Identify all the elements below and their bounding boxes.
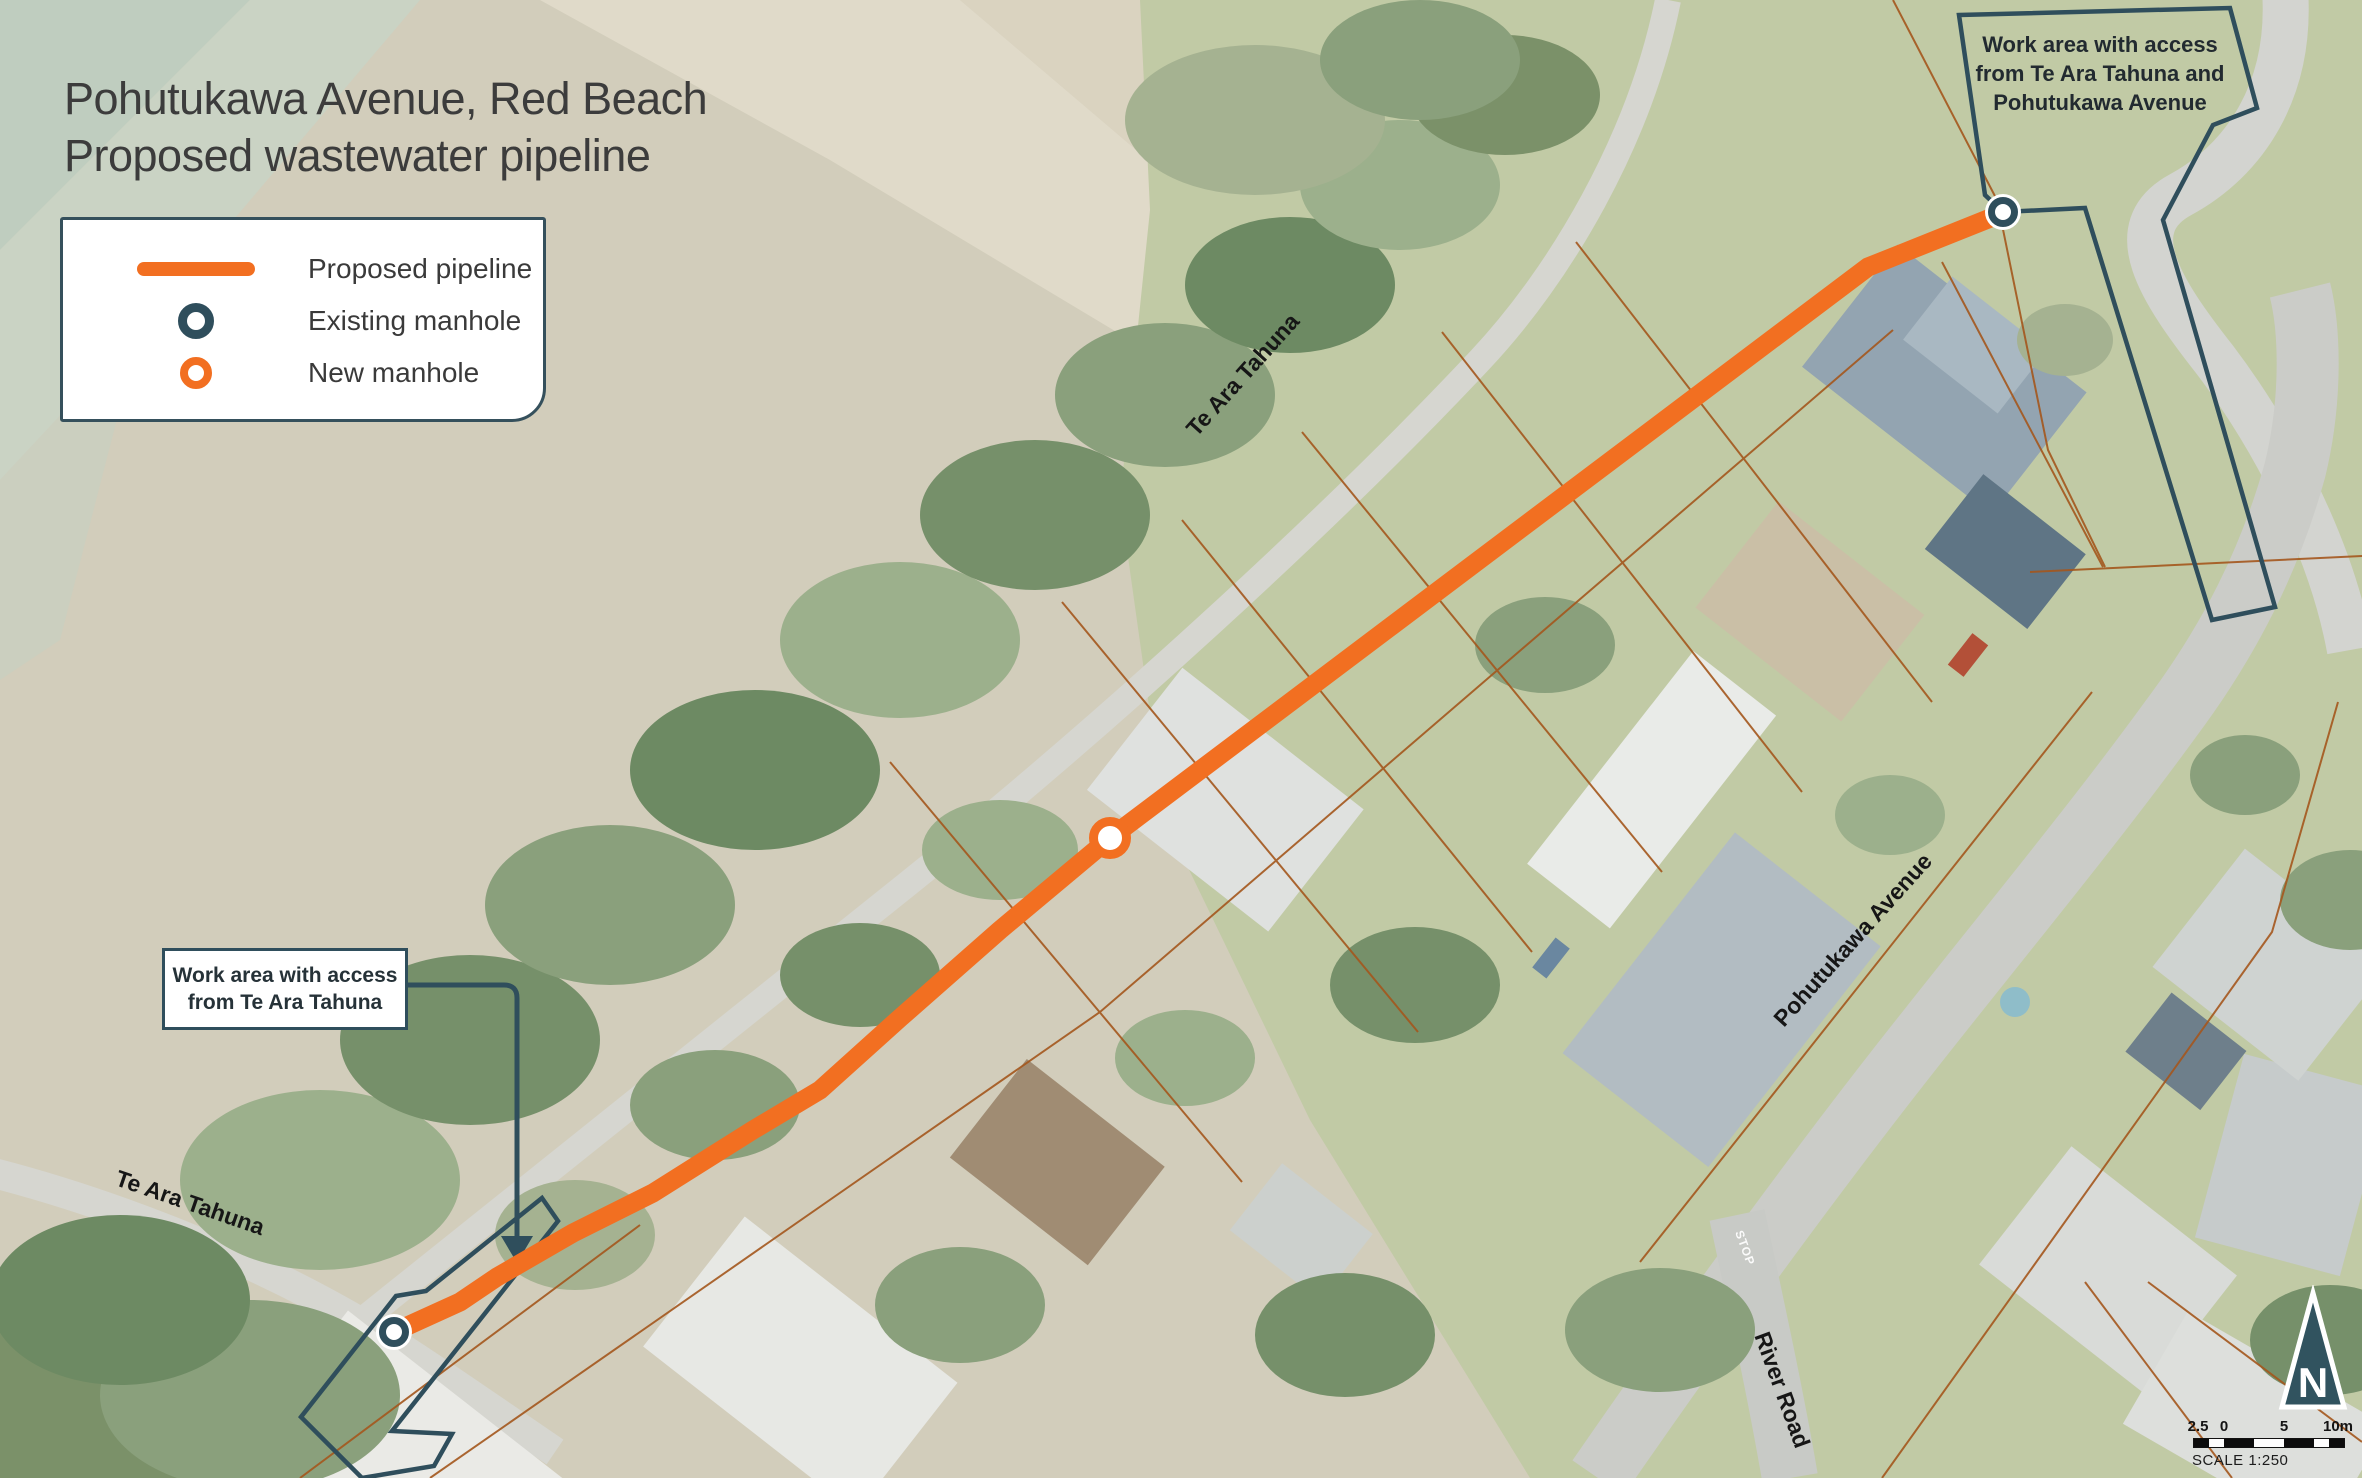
legend-label-existing-manhole: Existing manhole (308, 305, 521, 337)
scale-bar: 2.5 0 5 10m SCALE 1:250 (2186, 1418, 2356, 1478)
legend-item-new-manhole: New manhole (63, 348, 543, 398)
north-arrow-label: N (2298, 1359, 2328, 1406)
scale-caption: SCALE 1:250 (2192, 1452, 2288, 1469)
existing-manhole-marker-bottom-left (376, 1314, 412, 1350)
callout-tr-line1: Work area with access (1975, 30, 2225, 59)
proposed-pipeline (394, 213, 2003, 1332)
scale-tick-10m: 10m (2323, 1418, 2353, 1435)
callout-leader-line (402, 985, 517, 1238)
callout-tr-line2: from Te Ara Tahuna and (1975, 59, 2225, 88)
callout-tr-line3: Pohutukawa Avenue (1975, 88, 2225, 117)
legend-item-pipeline: Proposed pipeline (63, 244, 543, 294)
map-canvas: Te Ara Tahuna Te Ara Tahuna Pohutukawa A… (0, 0, 2362, 1478)
legend-label-new-manhole: New manhole (308, 357, 479, 389)
scale-tick-2-5: 2.5 (2188, 1418, 2209, 1435)
new-manhole-marker (1094, 822, 1127, 855)
page-title-line1: Pohutukawa Avenue, Red Beach (64, 70, 707, 127)
callout-work-area-top-right: Work area with access from Te Ara Tahuna… (1975, 30, 2225, 117)
scale-tick-5: 5 (2280, 1418, 2288, 1435)
existing-manhole-marker-top-right (1985, 194, 2021, 230)
existing-manhole-icon (178, 303, 214, 339)
callout-left-line2: from Te Ara Tahuna (188, 989, 382, 1016)
legend-label-pipeline: Proposed pipeline (308, 253, 532, 285)
new-manhole-icon (180, 357, 212, 389)
legend-item-existing-manhole: Existing manhole (63, 296, 543, 346)
scale-tick-0: 0 (2220, 1418, 2228, 1435)
pipeline-swatch-icon (137, 262, 255, 276)
north-arrow: N (2268, 1285, 2360, 1420)
page-title: Pohutukawa Avenue, Red Beach Proposed wa… (64, 70, 707, 184)
callout-work-area-left: Work area with access from Te Ara Tahuna (162, 948, 408, 1030)
scale-bar-segments (2193, 1438, 2345, 1448)
callout-left-line1: Work area with access (173, 962, 398, 989)
legend: Proposed pipeline Existing manhole New m… (60, 217, 546, 422)
page-title-line2: Proposed wastewater pipeline (64, 127, 707, 184)
